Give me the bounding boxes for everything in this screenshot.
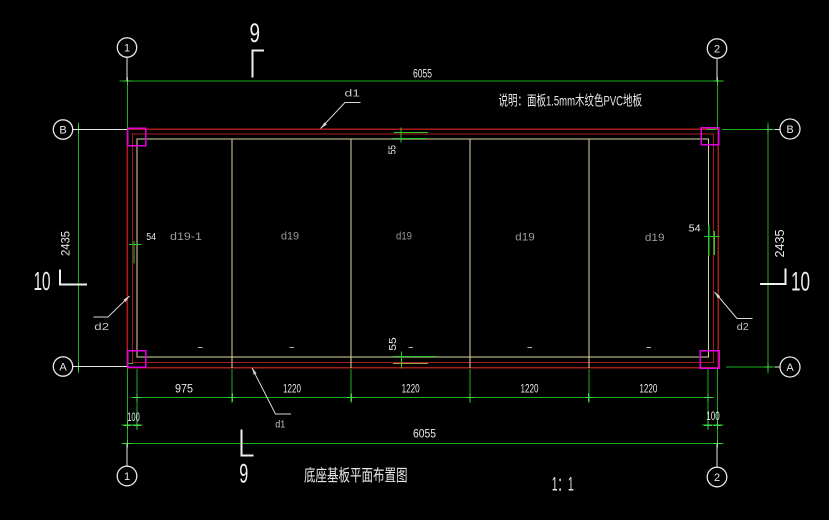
- svg-text:A: A: [786, 362, 794, 374]
- svg-text:54: 54: [146, 232, 156, 243]
- svg-text:1220: 1220: [639, 382, 657, 396]
- svg-text:6055: 6055: [413, 427, 436, 441]
- svg-text:d19: d19: [515, 232, 535, 244]
- svg-text:d19-1: d19-1: [170, 231, 202, 243]
- svg-text:d2: d2: [737, 321, 749, 333]
- svg-text:d19: d19: [645, 232, 665, 244]
- svg-text:100: 100: [127, 410, 140, 424]
- svg-text:d19: d19: [281, 231, 299, 243]
- svg-text:54: 54: [689, 224, 701, 235]
- svg-text:1220: 1220: [283, 382, 301, 396]
- svg-text:1220: 1220: [521, 382, 539, 396]
- svg-text:55: 55: [388, 145, 399, 155]
- svg-text:2435: 2435: [59, 231, 73, 256]
- svg-text:2: 2: [714, 44, 720, 56]
- svg-text:10: 10: [791, 267, 810, 297]
- svg-text:说明：面板1.5mm木纹色PVC地板: 说明：面板1.5mm木纹色PVC地板: [499, 93, 643, 109]
- svg-text:10: 10: [34, 268, 51, 296]
- svg-text:6055: 6055: [413, 67, 432, 81]
- svg-text:B: B: [786, 124, 793, 136]
- svg-text:100: 100: [706, 409, 720, 423]
- svg-text:1220: 1220: [402, 382, 420, 396]
- svg-text:A: A: [59, 362, 67, 374]
- svg-text:B: B: [59, 125, 66, 137]
- svg-text:d1: d1: [275, 419, 285, 431]
- svg-text:1: 1: [124, 43, 130, 55]
- svg-text:9: 9: [250, 18, 261, 48]
- svg-text:975: 975: [175, 382, 193, 396]
- svg-text:55: 55: [388, 337, 399, 351]
- svg-text:1：1: 1：1: [552, 475, 574, 496]
- svg-text:d2: d2: [94, 321, 109, 333]
- svg-text:2435: 2435: [772, 230, 787, 258]
- svg-text:9: 9: [239, 459, 248, 489]
- svg-text:1: 1: [124, 471, 130, 483]
- svg-text:2: 2: [714, 472, 720, 484]
- svg-text:d1: d1: [345, 87, 361, 99]
- svg-text:底座基板平面布置图: 底座基板平面布置图: [304, 466, 408, 485]
- svg-text:d19: d19: [396, 231, 412, 243]
